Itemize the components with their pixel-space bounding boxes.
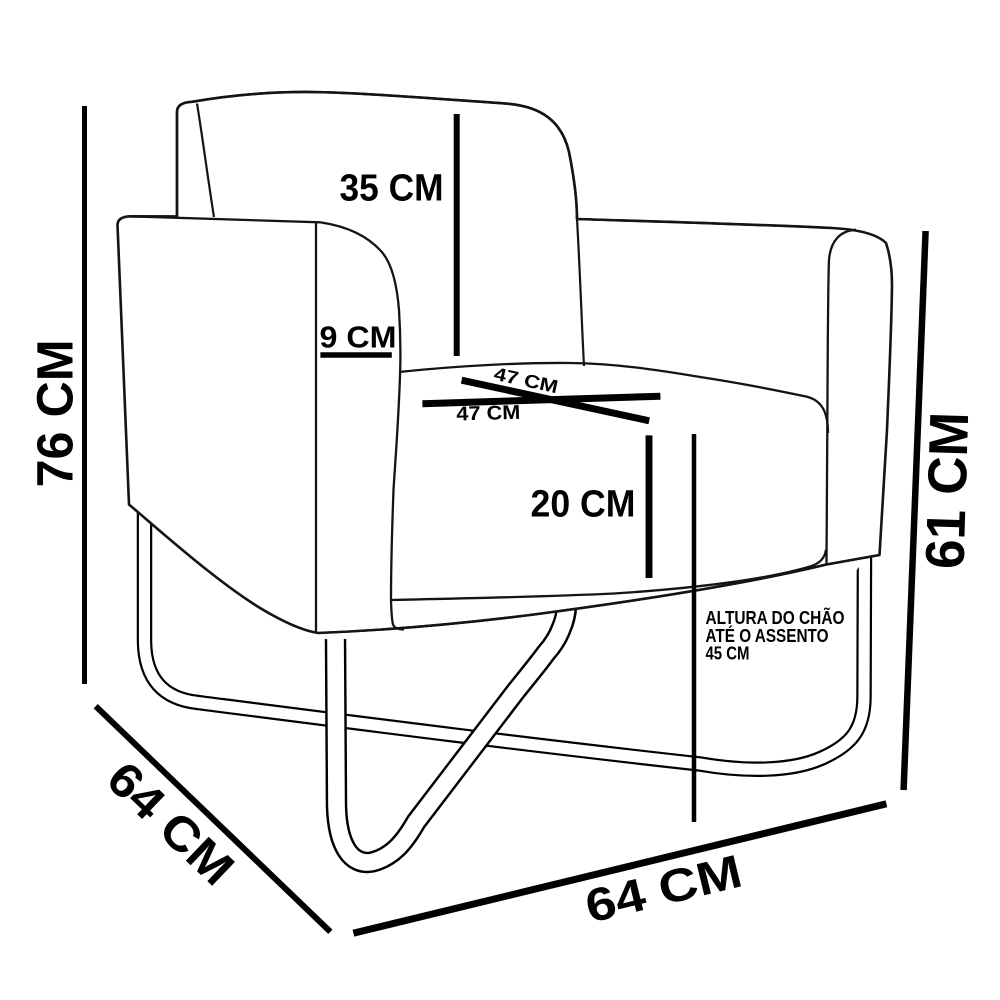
svg-text:ALTURA DO CHÃO: ALTURA DO CHÃO <box>706 607 845 628</box>
svg-text:47 CM: 47 CM <box>456 402 521 426</box>
svg-text:20 CM: 20 CM <box>531 484 636 526</box>
svg-text:35 CM: 35 CM <box>340 168 444 210</box>
svg-text:45 CM: 45 CM <box>706 644 750 664</box>
svg-text:76 CM: 76 CM <box>27 339 84 487</box>
svg-text:9 CM: 9 CM <box>320 319 397 354</box>
svg-text:61 CM: 61 CM <box>914 411 981 570</box>
